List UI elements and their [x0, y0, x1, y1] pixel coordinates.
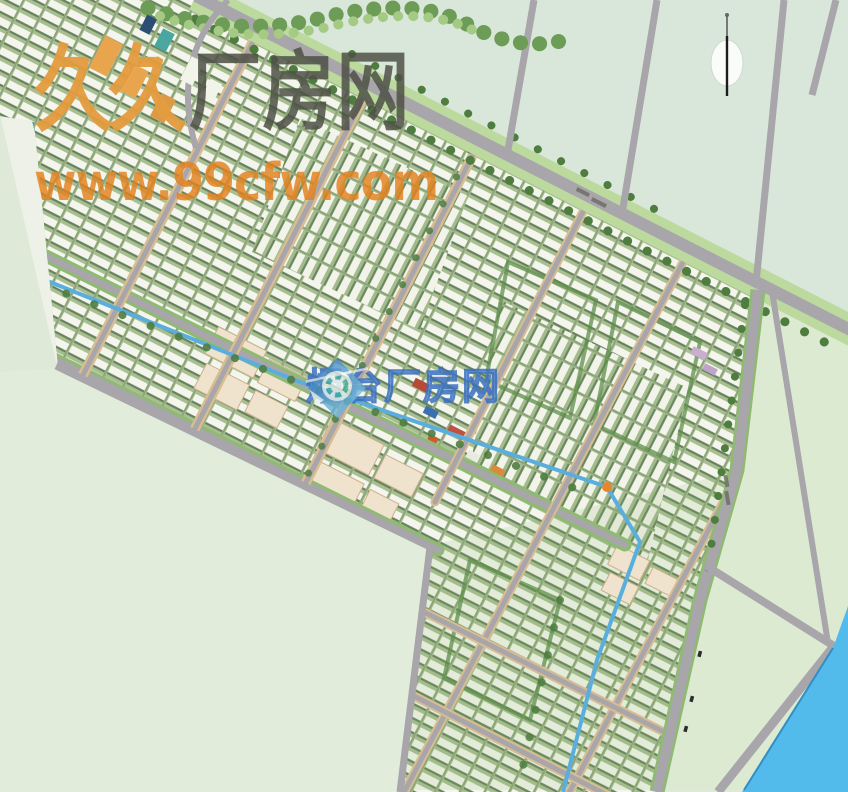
watermark-brand-prefix: 久久 [34, 36, 182, 145]
flower-garden-marker [602, 482, 612, 492]
masterplan-map: 久久厂房网 www.99cfw.com 烟台厂房网 [0, 0, 848, 792]
watermark-brand: 久久厂房网 [34, 44, 410, 138]
watermark-url: www.99cfw.com [34, 152, 438, 212]
watermark-center: 烟台厂房网 [306, 356, 501, 410]
watermark-brand-suffix: 厂房网 [189, 41, 411, 143]
diamond-aperture-logo-icon [306, 356, 368, 420]
